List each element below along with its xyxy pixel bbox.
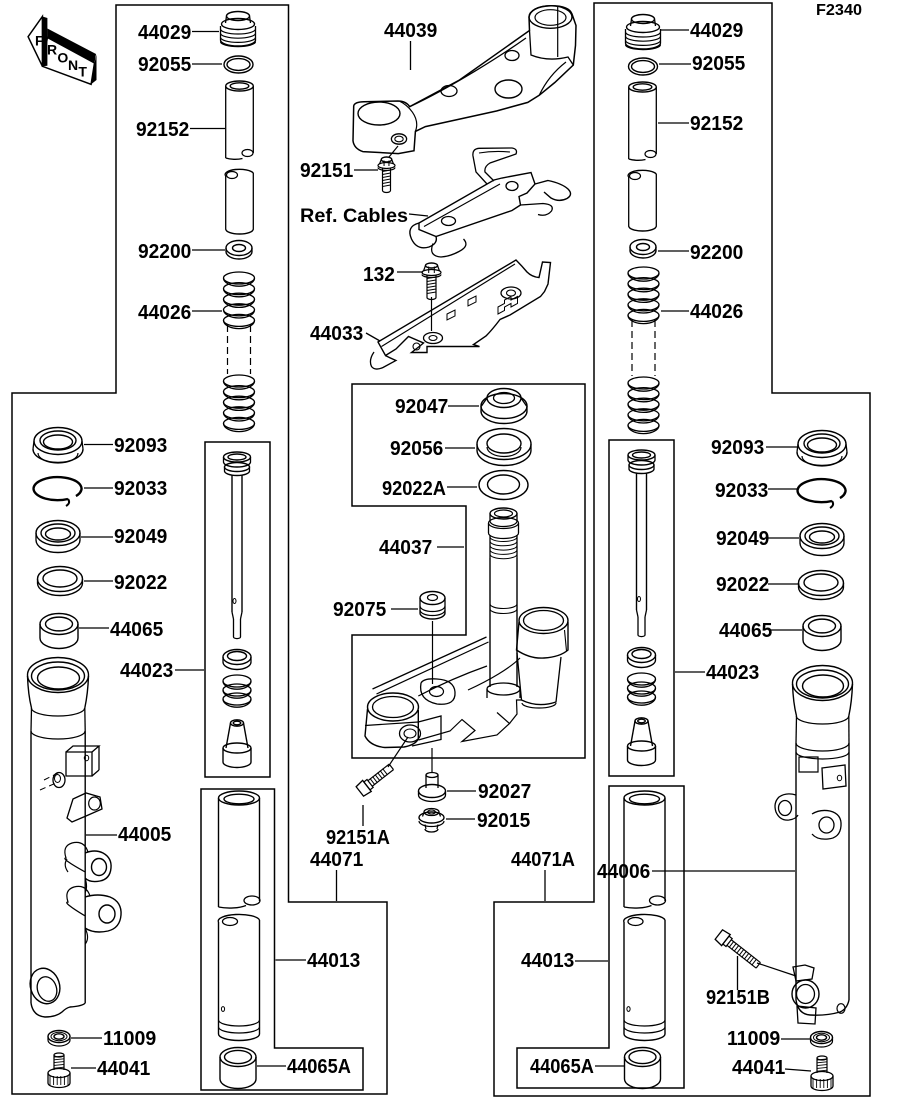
svg-text:132: 132: [363, 264, 395, 286]
svg-text:92049: 92049: [114, 526, 167, 548]
svg-text:F2340: F2340: [816, 2, 862, 19]
svg-text:F: F: [35, 32, 44, 48]
svg-text:92049: 92049: [716, 528, 769, 550]
svg-text:92151B: 92151B: [706, 987, 770, 1009]
svg-text:Ref. Cables: Ref. Cables: [300, 205, 408, 227]
svg-text:44065A: 44065A: [287, 1056, 351, 1078]
svg-text:92093: 92093: [711, 437, 764, 459]
svg-text:44037: 44037: [379, 537, 432, 559]
svg-text:92151: 92151: [300, 160, 353, 182]
svg-text:T: T: [78, 63, 87, 79]
svg-text:92093: 92093: [114, 435, 167, 457]
svg-text:44023: 44023: [120, 660, 173, 682]
svg-text:44026: 44026: [690, 301, 743, 323]
svg-text:92027: 92027: [478, 781, 531, 803]
svg-text:11009: 11009: [103, 1028, 156, 1050]
svg-text:92047: 92047: [395, 396, 448, 418]
svg-text:92152: 92152: [690, 113, 743, 135]
svg-text:44013: 44013: [521, 950, 574, 972]
svg-text:92200: 92200: [690, 242, 743, 264]
svg-text:92022: 92022: [716, 574, 769, 596]
svg-text:44013: 44013: [307, 950, 360, 972]
svg-text:92151A: 92151A: [326, 827, 390, 849]
svg-text:92056: 92056: [390, 438, 443, 460]
svg-text:44029: 44029: [138, 22, 191, 44]
svg-text:11009: 11009: [727, 1028, 780, 1050]
svg-text:92152: 92152: [136, 119, 189, 141]
svg-text:92055: 92055: [692, 53, 745, 75]
svg-text:O: O: [57, 50, 68, 66]
svg-text:44065A: 44065A: [530, 1056, 594, 1078]
svg-text:44071A: 44071A: [511, 849, 575, 871]
svg-text:92075: 92075: [333, 599, 386, 621]
svg-text:44071: 44071: [310, 849, 363, 871]
svg-text:92022A: 92022A: [382, 478, 446, 500]
svg-text:44029: 44029: [690, 20, 743, 42]
svg-text:N: N: [68, 57, 78, 73]
svg-text:92200: 92200: [138, 241, 191, 263]
svg-text:92055: 92055: [138, 54, 191, 76]
svg-text:92033: 92033: [715, 480, 768, 502]
svg-text:92015: 92015: [477, 810, 530, 832]
svg-text:92033: 92033: [114, 478, 167, 500]
svg-text:44023: 44023: [706, 662, 759, 684]
svg-text:44039: 44039: [384, 20, 437, 42]
svg-text:R: R: [47, 42, 57, 58]
svg-text:92022: 92022: [114, 572, 167, 594]
svg-text:44005: 44005: [118, 824, 171, 846]
svg-text:44041: 44041: [732, 1057, 785, 1079]
svg-text:44041: 44041: [97, 1058, 150, 1080]
svg-text:44065: 44065: [719, 620, 772, 642]
svg-text:44065: 44065: [110, 619, 163, 641]
svg-text:44033: 44033: [310, 323, 363, 345]
svg-text:44026: 44026: [138, 302, 191, 324]
